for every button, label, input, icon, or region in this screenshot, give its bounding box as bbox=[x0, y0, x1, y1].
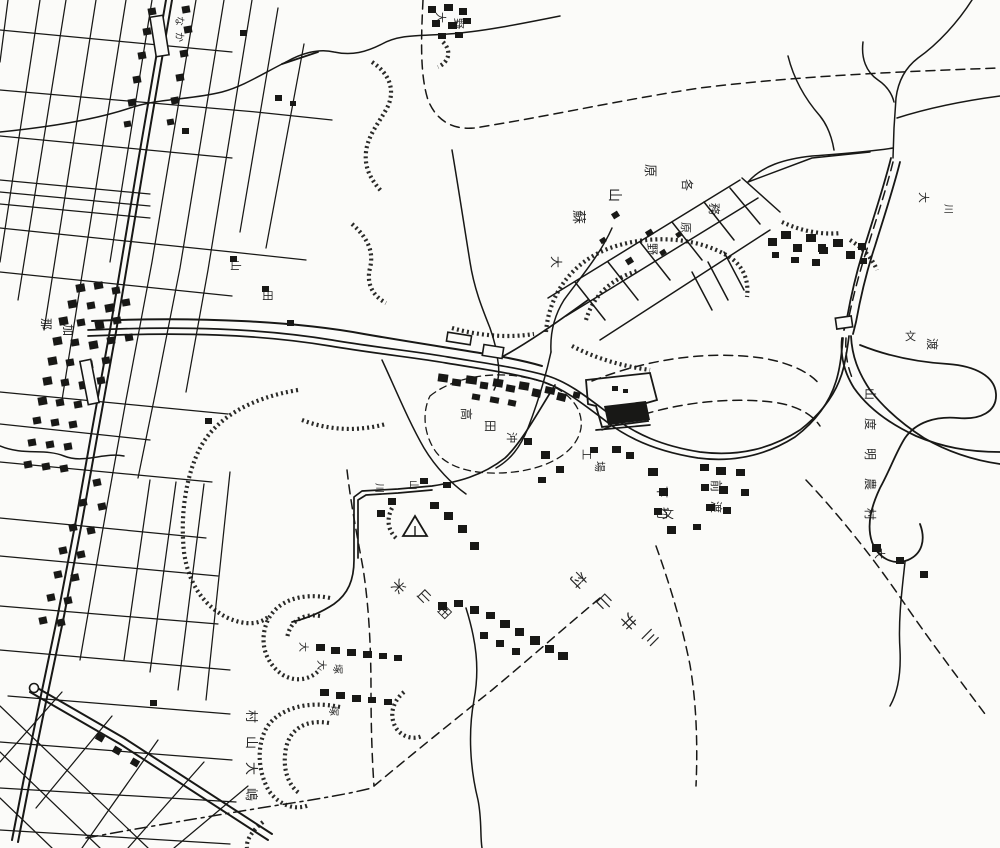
map-label: 各 bbox=[680, 179, 695, 191]
building bbox=[88, 340, 98, 349]
building bbox=[420, 478, 428, 484]
building bbox=[736, 469, 745, 476]
building bbox=[150, 700, 157, 706]
building bbox=[23, 460, 32, 468]
building bbox=[626, 452, 634, 459]
building bbox=[32, 416, 41, 424]
building bbox=[316, 644, 325, 651]
building bbox=[47, 356, 57, 365]
building bbox=[127, 98, 136, 106]
map-label: 山 bbox=[229, 260, 242, 271]
building bbox=[920, 571, 928, 578]
building bbox=[496, 640, 504, 647]
map-label: 加 bbox=[61, 324, 75, 336]
building bbox=[205, 418, 212, 424]
map-label: 文 bbox=[662, 506, 674, 521]
building bbox=[860, 258, 867, 264]
building bbox=[137, 51, 146, 59]
map-label: 那 bbox=[39, 318, 53, 330]
map-label: 塚 bbox=[331, 664, 343, 674]
building bbox=[384, 699, 392, 705]
building bbox=[556, 466, 564, 473]
building bbox=[716, 467, 726, 475]
building bbox=[101, 356, 110, 364]
map-label: 山 bbox=[863, 388, 877, 400]
building bbox=[111, 286, 120, 294]
building bbox=[806, 234, 816, 242]
building bbox=[470, 606, 479, 614]
map-label: 明 bbox=[863, 448, 877, 460]
map-label: 山 bbox=[243, 736, 258, 749]
building bbox=[518, 381, 529, 391]
building bbox=[60, 378, 69, 386]
map-label: か bbox=[173, 32, 185, 42]
map-label: な bbox=[173, 16, 185, 26]
compound-mark bbox=[623, 389, 628, 393]
building bbox=[701, 484, 709, 491]
building bbox=[50, 418, 59, 426]
station-rect bbox=[835, 316, 852, 329]
map-label: 大 bbox=[297, 642, 310, 652]
building bbox=[68, 420, 77, 428]
building bbox=[846, 251, 855, 259]
building bbox=[179, 49, 188, 57]
building bbox=[181, 5, 190, 13]
building bbox=[812, 259, 820, 266]
map-label: 大 bbox=[315, 660, 328, 670]
building bbox=[515, 628, 524, 636]
building bbox=[76, 318, 85, 326]
building bbox=[73, 400, 82, 408]
building bbox=[648, 468, 658, 476]
building bbox=[791, 257, 799, 263]
building bbox=[331, 647, 340, 654]
building bbox=[470, 542, 479, 550]
building bbox=[352, 695, 361, 702]
building bbox=[437, 373, 448, 382]
building bbox=[818, 244, 826, 252]
building bbox=[182, 128, 189, 134]
building bbox=[63, 442, 72, 450]
building bbox=[444, 4, 453, 11]
building bbox=[793, 244, 802, 252]
building bbox=[486, 612, 495, 619]
building bbox=[530, 636, 540, 645]
building bbox=[667, 526, 676, 534]
building bbox=[52, 336, 62, 345]
map-label: 度 bbox=[863, 418, 878, 430]
building bbox=[42, 376, 52, 385]
building bbox=[458, 525, 467, 533]
building bbox=[132, 75, 141, 83]
map-label: 文 bbox=[905, 329, 916, 343]
building bbox=[336, 692, 345, 699]
building bbox=[37, 396, 47, 405]
building bbox=[27, 438, 36, 446]
building bbox=[290, 101, 296, 106]
building bbox=[94, 320, 104, 329]
map-label: 場 bbox=[593, 461, 606, 472]
building bbox=[781, 231, 791, 239]
map-label: 山 bbox=[606, 188, 622, 202]
building bbox=[741, 489, 749, 496]
building bbox=[541, 451, 550, 459]
building bbox=[545, 645, 554, 653]
building bbox=[438, 33, 446, 39]
map-label: 嶋 bbox=[243, 788, 258, 801]
building bbox=[170, 96, 179, 104]
building bbox=[480, 381, 489, 389]
compound-mark bbox=[612, 386, 618, 391]
building bbox=[858, 243, 866, 250]
building bbox=[768, 238, 777, 246]
building bbox=[612, 446, 621, 453]
map-label: 農 bbox=[863, 478, 877, 490]
building bbox=[167, 118, 175, 125]
building bbox=[287, 320, 294, 326]
building bbox=[455, 32, 463, 38]
map-label: 田 bbox=[483, 420, 497, 432]
map-label: 村 bbox=[243, 710, 258, 723]
building bbox=[512, 648, 520, 655]
building bbox=[388, 498, 396, 505]
map-label: 川 bbox=[942, 204, 953, 214]
map-label: 田 bbox=[261, 290, 274, 301]
map-label: 務 bbox=[707, 203, 721, 215]
building bbox=[693, 524, 701, 530]
station-circle-icon bbox=[30, 684, 39, 693]
building bbox=[124, 333, 133, 341]
map-label: 大 bbox=[917, 192, 931, 203]
map-label: 原 bbox=[642, 164, 657, 177]
building bbox=[772, 252, 779, 258]
building bbox=[106, 336, 115, 344]
building bbox=[492, 378, 503, 388]
building bbox=[67, 299, 77, 308]
map-label: 野 bbox=[645, 243, 659, 255]
map-label: 沖 bbox=[505, 432, 518, 443]
building bbox=[394, 655, 402, 661]
building bbox=[124, 120, 132, 127]
building bbox=[65, 358, 74, 366]
building bbox=[70, 338, 79, 346]
map-label: 高 bbox=[459, 408, 474, 420]
building bbox=[444, 512, 453, 520]
building bbox=[368, 697, 376, 703]
building bbox=[377, 510, 385, 517]
building bbox=[465, 375, 477, 384]
building bbox=[524, 438, 532, 445]
map-label: 前 bbox=[709, 480, 724, 492]
building bbox=[700, 464, 709, 471]
station-rect bbox=[482, 345, 503, 359]
building bbox=[104, 303, 114, 312]
building bbox=[240, 30, 247, 36]
map-label: 蘇 bbox=[570, 210, 586, 224]
building bbox=[96, 376, 105, 384]
building bbox=[55, 398, 64, 406]
building bbox=[142, 27, 151, 35]
building bbox=[45, 440, 54, 448]
building bbox=[538, 477, 546, 483]
building bbox=[175, 73, 184, 81]
map-svg: 山蘇原各務野原大村山井三米山田山度明農村渡大川村山大嶋大塚塚大高田沖川山工場下切… bbox=[0, 0, 1000, 848]
building bbox=[459, 8, 467, 15]
building bbox=[480, 632, 488, 639]
building bbox=[320, 689, 329, 696]
building bbox=[275, 95, 282, 101]
building bbox=[454, 600, 463, 607]
building bbox=[443, 482, 451, 488]
map-label: 渡 bbox=[709, 501, 724, 513]
building bbox=[896, 557, 904, 564]
building bbox=[59, 464, 68, 472]
building bbox=[147, 7, 156, 15]
map-label: 野 bbox=[452, 18, 465, 29]
map-label: 村 bbox=[863, 508, 877, 520]
map-label: 大 bbox=[549, 256, 563, 268]
building bbox=[430, 502, 439, 509]
building bbox=[112, 316, 121, 324]
map-label: 塚 bbox=[327, 706, 339, 716]
map-label: 工 bbox=[580, 449, 593, 460]
map-label: 大 bbox=[243, 762, 258, 775]
scanned-map: 山蘇原各務野原大村山井三米山田山度明農村渡大川村山大嶋大塚塚大高田沖川山工場下切… bbox=[0, 0, 1000, 848]
map-label: 山 bbox=[407, 480, 419, 490]
building bbox=[833, 239, 843, 247]
building bbox=[558, 652, 568, 660]
map-label: 大 bbox=[873, 548, 887, 559]
building bbox=[347, 649, 356, 656]
building bbox=[75, 283, 85, 292]
building bbox=[86, 301, 95, 309]
map-label: 渡 bbox=[925, 338, 940, 350]
building bbox=[500, 620, 510, 628]
map-label: 大 bbox=[434, 12, 448, 23]
building bbox=[452, 378, 462, 386]
map-label: 下 bbox=[655, 486, 669, 498]
building bbox=[363, 651, 372, 658]
building bbox=[379, 653, 387, 659]
map-label: 川 bbox=[373, 483, 384, 493]
map-label: 原 bbox=[679, 222, 692, 233]
building bbox=[121, 298, 130, 306]
building bbox=[723, 507, 731, 514]
building bbox=[41, 462, 50, 470]
